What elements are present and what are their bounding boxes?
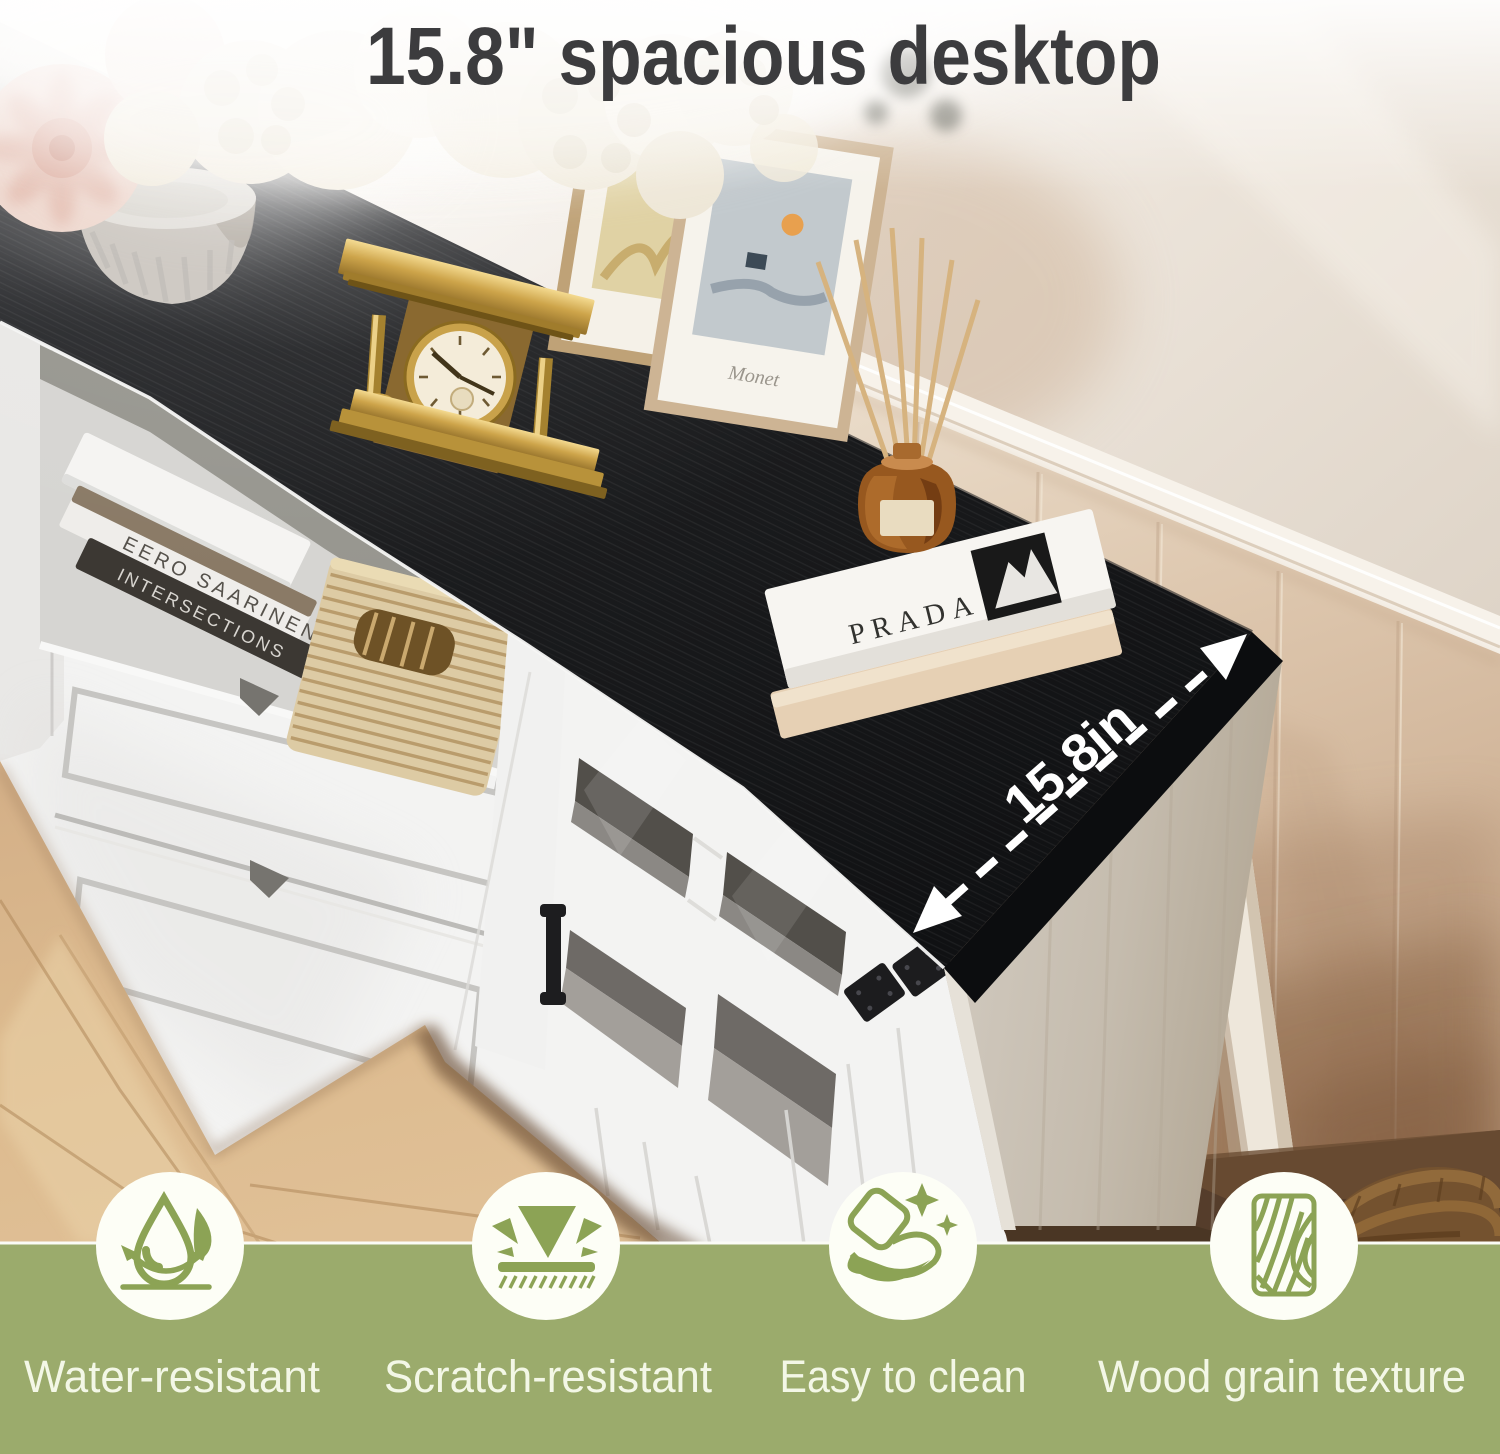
svg-text:Water-resistant: Water-resistant — [24, 1351, 320, 1402]
svg-text:Scratch-resistant: Scratch-resistant — [384, 1351, 712, 1402]
svg-text:15.8" spacious desktop: 15.8" spacious desktop — [366, 11, 1161, 102]
svg-text:Easy to clean: Easy to clean — [780, 1351, 1027, 1402]
svg-text:Wood grain texture: Wood grain texture — [1098, 1351, 1466, 1402]
